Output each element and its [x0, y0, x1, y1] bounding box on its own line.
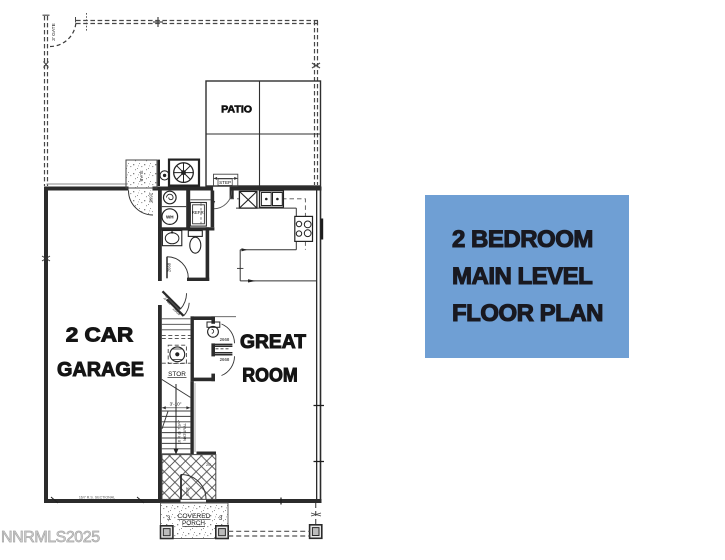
svg-text:STEP: STEP	[219, 180, 231, 185]
svg-text:WH: WH	[166, 214, 174, 219]
svg-text:16/7 R.S. SECTIONAL: 16/7 R.S. SECTIONAL	[79, 495, 115, 499]
svg-text:SLAB: SLAB	[139, 170, 144, 181]
svg-text:ROOM: ROOM	[242, 364, 298, 386]
svg-text:3070: 3070	[185, 487, 190, 497]
svg-text:2668: 2668	[172, 306, 183, 317]
svg-text:2668: 2668	[220, 357, 230, 362]
svg-text:REFR.: REFR.	[192, 210, 205, 215]
svg-text:16 R @ 7 3/4": 16 R @ 7 3/4"	[176, 419, 181, 444]
svg-text:20': 20'	[206, 462, 211, 467]
svg-text:COVERED: COVERED	[178, 513, 211, 520]
svg-text:2668: 2668	[148, 193, 153, 203]
svg-text:PORCH: PORCH	[182, 520, 205, 527]
svg-text:PATIO: PATIO	[221, 105, 252, 116]
svg-text:GARAGE: GARAGE	[57, 358, 144, 381]
svg-text:NATURAL: NATURAL	[182, 422, 187, 441]
svg-text:2668: 2668	[220, 337, 230, 342]
svg-text:3' GATE: 3' GATE	[51, 23, 57, 41]
svg-text:STOR: STOR	[168, 371, 186, 378]
svg-text:GREAT: GREAT	[240, 331, 306, 353]
svg-text:2 CAR: 2 CAR	[66, 324, 134, 347]
svg-text:2668: 2668	[167, 262, 172, 272]
